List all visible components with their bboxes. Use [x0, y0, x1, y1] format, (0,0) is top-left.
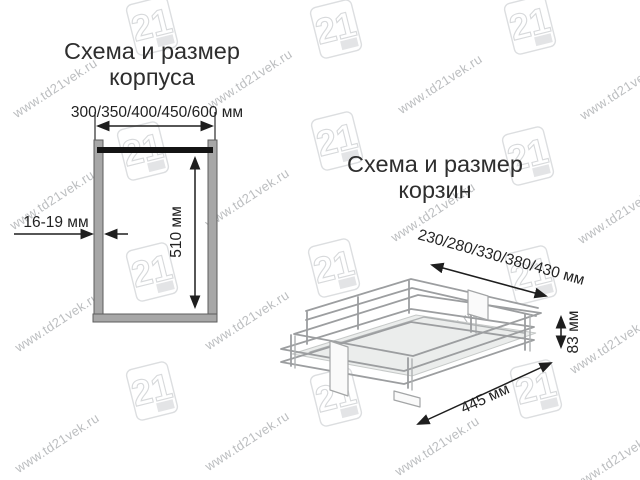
cabinet-top-rail [97, 147, 213, 153]
basket-length-label: 445 мм [458, 380, 512, 417]
basket-height-label: 83 мм [565, 311, 582, 354]
catalog-diagram-image: www.td21vek.ruwww.td21vek.ruwww.td21vek.… [0, 0, 640, 480]
cabinet-right-wall [208, 140, 217, 314]
basket-title-line1: Схема и размер [347, 151, 523, 177]
basket-bracket-plate-front [330, 341, 348, 396]
basket-gallery-rail-bottom [306, 288, 536, 320]
basket-title-line2: корзин [398, 177, 471, 203]
cabinet-diagram: Схема и размер корпуса 300/350/400/450/6… [14, 38, 243, 322]
cabinet-title-line1: Схема и размер [64, 38, 240, 64]
basket-diagram: Схема и размер корзин [281, 151, 586, 424]
cabinet-height-label: 510 мм [168, 206, 185, 257]
cabinet-width-label: 300/350/400/450/600 мм [71, 104, 243, 121]
basket-front-foot [394, 391, 420, 407]
panel-thickness-label: 16-19 мм [23, 214, 88, 231]
cabinet-bottom-panel [93, 314, 217, 322]
cabinet-title-line2: корпуса [109, 64, 196, 90]
basket-bracket-plate-back [468, 290, 488, 320]
basket-depth-label: 230/280/330/380/430 мм [416, 226, 586, 288]
diagram-canvas: Схема и размер корпуса 300/350/400/450/6… [0, 0, 640, 480]
cabinet-left-wall [94, 140, 103, 314]
